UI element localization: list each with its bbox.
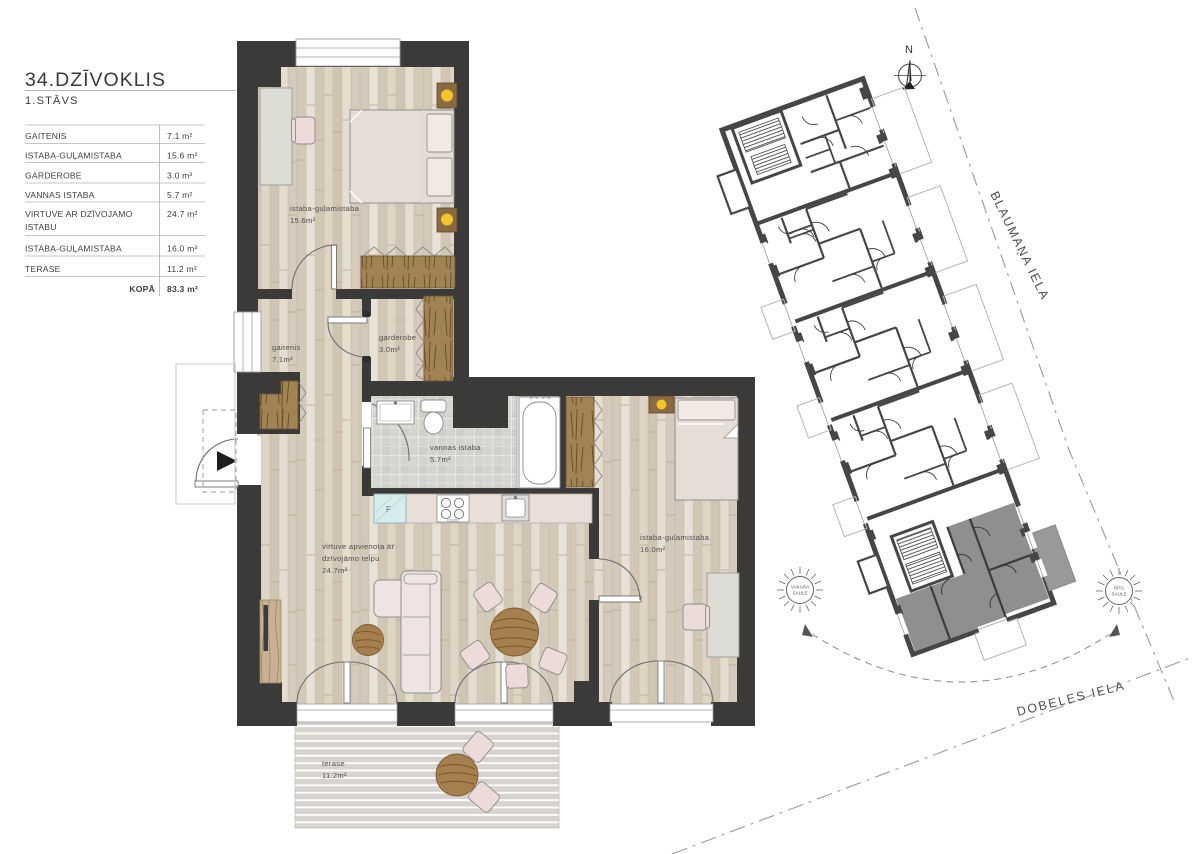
svg-text:ISTABU: ISTABU: [25, 222, 57, 232]
svg-text:11.2m²: 11.2m²: [322, 771, 347, 780]
svg-text:83.3 m²: 83.3 m²: [167, 284, 198, 294]
svg-text:1.STĀVS: 1.STĀVS: [25, 95, 79, 107]
svg-text:vannas istaba: vannas istaba: [430, 443, 481, 452]
svg-text:15.6 m²: 15.6 m²: [167, 151, 198, 161]
svg-text:7.1 m²: 7.1 m²: [167, 131, 193, 141]
svg-text:24.7m²: 24.7m²: [322, 566, 348, 575]
svg-text:15.6m²: 15.6m²: [290, 216, 316, 225]
svg-text:34.DZĪVOKLIS: 34.DZĪVOKLIS: [25, 68, 166, 91]
svg-text:istaba-guļamistaba: istaba-guļamistaba: [640, 533, 710, 542]
svg-text:ISTABA-GUĻAMISTABA: ISTABA-GUĻAMISTABA: [25, 244, 122, 254]
svg-text:OOOO: OOOO: [447, 518, 459, 523]
svg-text:istaba-guļamistaba: istaba-guļamistaba: [290, 204, 360, 213]
svg-text:garderobe: garderobe: [379, 333, 416, 342]
svg-text:virtuve apvienota ar: virtuve apvienota ar: [322, 542, 394, 551]
svg-text:24.7 m²: 24.7 m²: [167, 209, 198, 219]
svg-text:ISTABA-GUĻAMISTABA: ISTABA-GUĻAMISTABA: [25, 151, 122, 161]
svg-text:F: F: [386, 505, 391, 514]
svg-text:KOPĀ: KOPĀ: [129, 284, 155, 294]
svg-text:5.7 m²: 5.7 m²: [167, 190, 193, 200]
svg-text:RĪTA: RĪTA: [1114, 585, 1125, 591]
svg-text:7.1m²: 7.1m²: [272, 355, 293, 364]
svg-text:GARDEROBE: GARDEROBE: [25, 171, 82, 181]
svg-text:16.0 m²: 16.0 m²: [167, 244, 198, 254]
svg-text:3.0m²: 3.0m²: [379, 345, 400, 354]
svg-text:3.0 m²: 3.0 m²: [167, 171, 193, 181]
svg-text:VAKARA: VAKARA: [791, 585, 810, 590]
svg-text:11.2 m²: 11.2 m²: [167, 264, 197, 274]
svg-text:N: N: [905, 44, 913, 56]
svg-text:VANNAS ISTABA: VANNAS ISTABA: [25, 190, 95, 200]
svg-text:BLAUMAŅA IELA: BLAUMAŅA IELA: [987, 189, 1052, 303]
svg-text:GAITENIS: GAITENIS: [25, 131, 67, 141]
svg-text:SAULE: SAULE: [792, 591, 807, 596]
svg-text:VIRTUVE AR DZĪVOJAMO: VIRTUVE AR DZĪVOJAMO: [25, 209, 133, 219]
svg-text:5.7m²: 5.7m²: [430, 455, 451, 464]
svg-text:gaitenis: gaitenis: [272, 343, 301, 352]
svg-text:SAULE: SAULE: [1111, 592, 1126, 597]
svg-text:dzīvojāmo telpu: dzīvojāmo telpu: [322, 554, 380, 563]
svg-text:DOBELES IELA: DOBELES IELA: [1015, 678, 1126, 718]
svg-text:TERASE: TERASE: [25, 264, 61, 274]
svg-text:terase: terase: [322, 759, 345, 768]
svg-text:16.0m²: 16.0m²: [640, 545, 666, 554]
